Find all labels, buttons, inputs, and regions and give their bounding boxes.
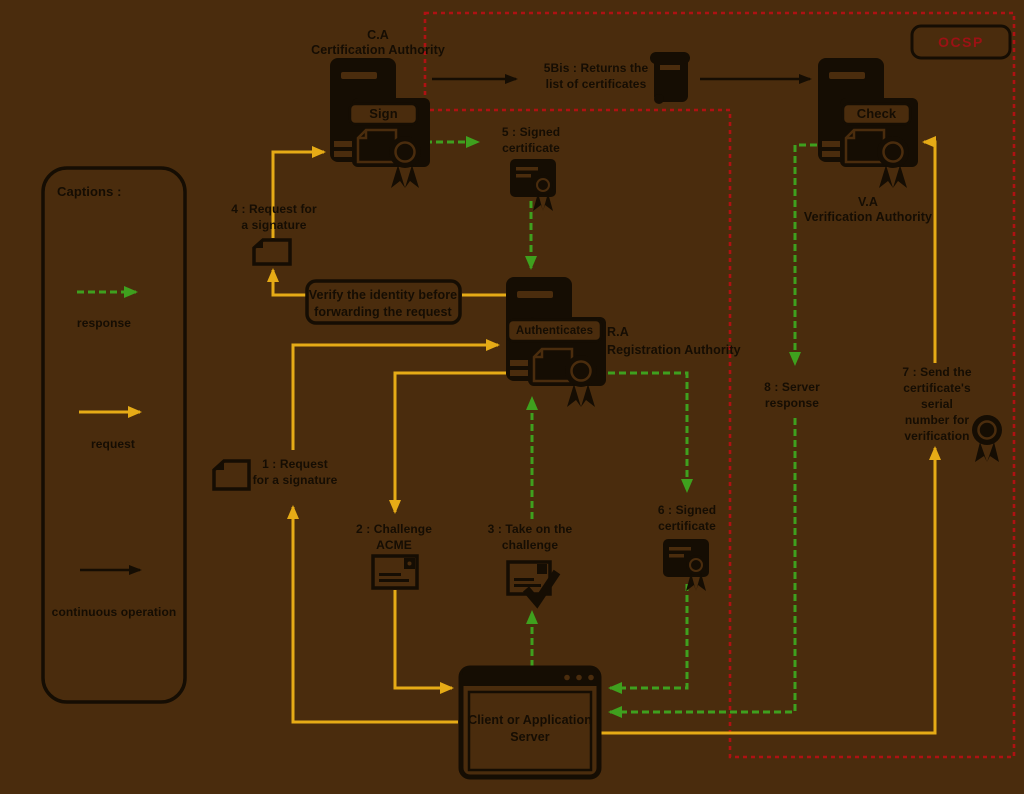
flow-2-challenge-b: [395, 590, 452, 688]
step-5-label: 5 : Signed certificate: [502, 124, 560, 156]
step-7-label: 7 : Send the certificate's serial number…: [894, 364, 981, 444]
step-3-label: 3 : Take on the challenge: [488, 521, 573, 553]
caption-response-label: response: [77, 315, 131, 331]
ca-action-label: Sign: [350, 104, 417, 124]
captions-box: [43, 168, 185, 702]
step-8-label: 8 : Server response: [764, 379, 820, 411]
flow-4-signature-b: [273, 270, 307, 295]
envelope-icon: [373, 556, 417, 588]
verify-note-label: Verify the identity before forwarding th…: [309, 287, 457, 321]
envelope-check-icon: [508, 562, 557, 602]
ra-action-label: Authenticates: [508, 324, 601, 338]
step-1-label: 1 : Request for a signature: [253, 456, 338, 488]
document-icon-1: [214, 461, 249, 489]
caption-continuous-label: continuous operation: [52, 604, 177, 620]
ra-server-icon: [506, 277, 606, 407]
certificate-seal-icon-6: [663, 539, 709, 591]
certificate-seal-icon-5: [510, 159, 556, 211]
step-6-label: 6 : Signed certificate: [658, 502, 716, 534]
flow-7-serial-a: [600, 448, 935, 733]
flow-8-response-a: [795, 145, 817, 364]
step-2-label: 2 : Challenge ACME: [356, 521, 432, 553]
va-action-label: Check: [843, 104, 910, 124]
caption-request-label: request: [91, 436, 135, 452]
flow-6-signed-cert-a: [608, 373, 687, 491]
flow-2-challenge-a: [395, 373, 506, 512]
flow-7-serial-b: [924, 142, 935, 363]
flow-6-signed-cert-b: [610, 584, 687, 688]
scroll-icon: [650, 52, 690, 104]
ocsp-label: OCSP: [912, 26, 1010, 58]
client-label: Client or Application Server: [468, 712, 592, 746]
step-5bis-label: 5Bis : Returns the list of certificates: [544, 60, 649, 92]
ca-node-title: C.A Certification Authority: [311, 28, 445, 58]
va-node-title: V.A Verification Authority: [804, 195, 932, 225]
document-icon-4: [254, 240, 290, 264]
pki-acme-diagram: C.A Certification Authority Sign V.A Ver…: [0, 0, 1024, 794]
ra-node-title: R.A Registration Authority: [607, 323, 741, 359]
captions-title: Captions :: [57, 184, 122, 200]
step-4-label: 4 : Request for a signature: [231, 201, 317, 233]
